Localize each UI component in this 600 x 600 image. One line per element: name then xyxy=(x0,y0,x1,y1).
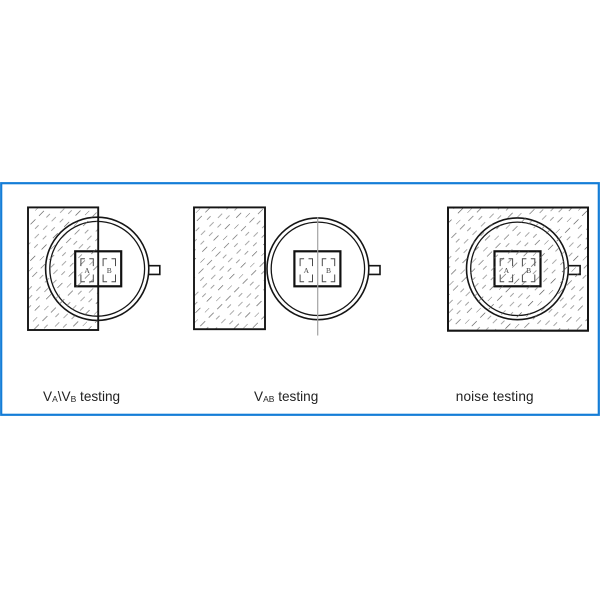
svg-text:noise testing: noise testing xyxy=(456,389,534,404)
svg-text:B: B xyxy=(326,266,331,275)
svg-text:B: B xyxy=(107,266,112,275)
svg-text:A: A xyxy=(304,266,310,275)
